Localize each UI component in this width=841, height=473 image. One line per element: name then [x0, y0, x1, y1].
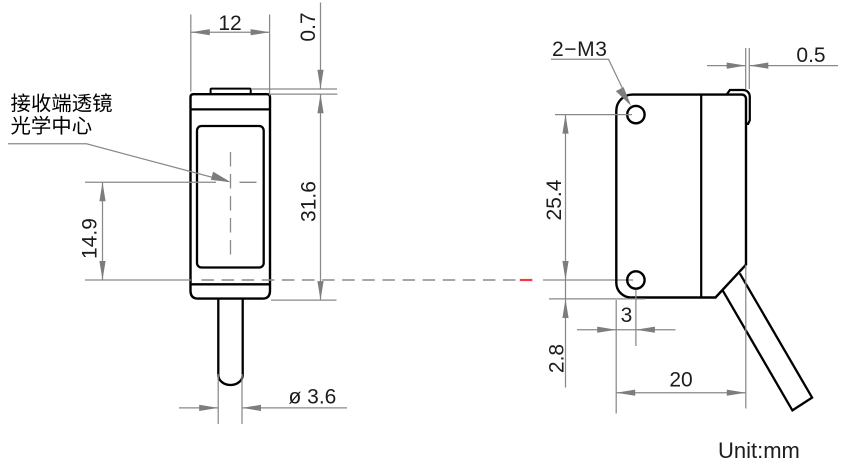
- svg-text:ø 3.6: ø 3.6: [289, 386, 337, 409]
- svg-text:0.7: 0.7: [297, 12, 320, 41]
- svg-text:2.8: 2.8: [546, 344, 569, 373]
- svg-text:2−M3: 2−M3: [552, 38, 608, 61]
- svg-text:Unit:mm: Unit:mm: [718, 438, 800, 463]
- svg-text:12: 12: [218, 12, 241, 35]
- svg-text:20: 20: [669, 369, 692, 392]
- svg-text:25.4: 25.4: [543, 179, 566, 220]
- svg-text:3: 3: [621, 304, 633, 327]
- svg-text:31.6: 31.6: [297, 181, 320, 222]
- svg-text:0.5: 0.5: [796, 44, 825, 67]
- svg-text:14.9: 14.9: [79, 218, 102, 259]
